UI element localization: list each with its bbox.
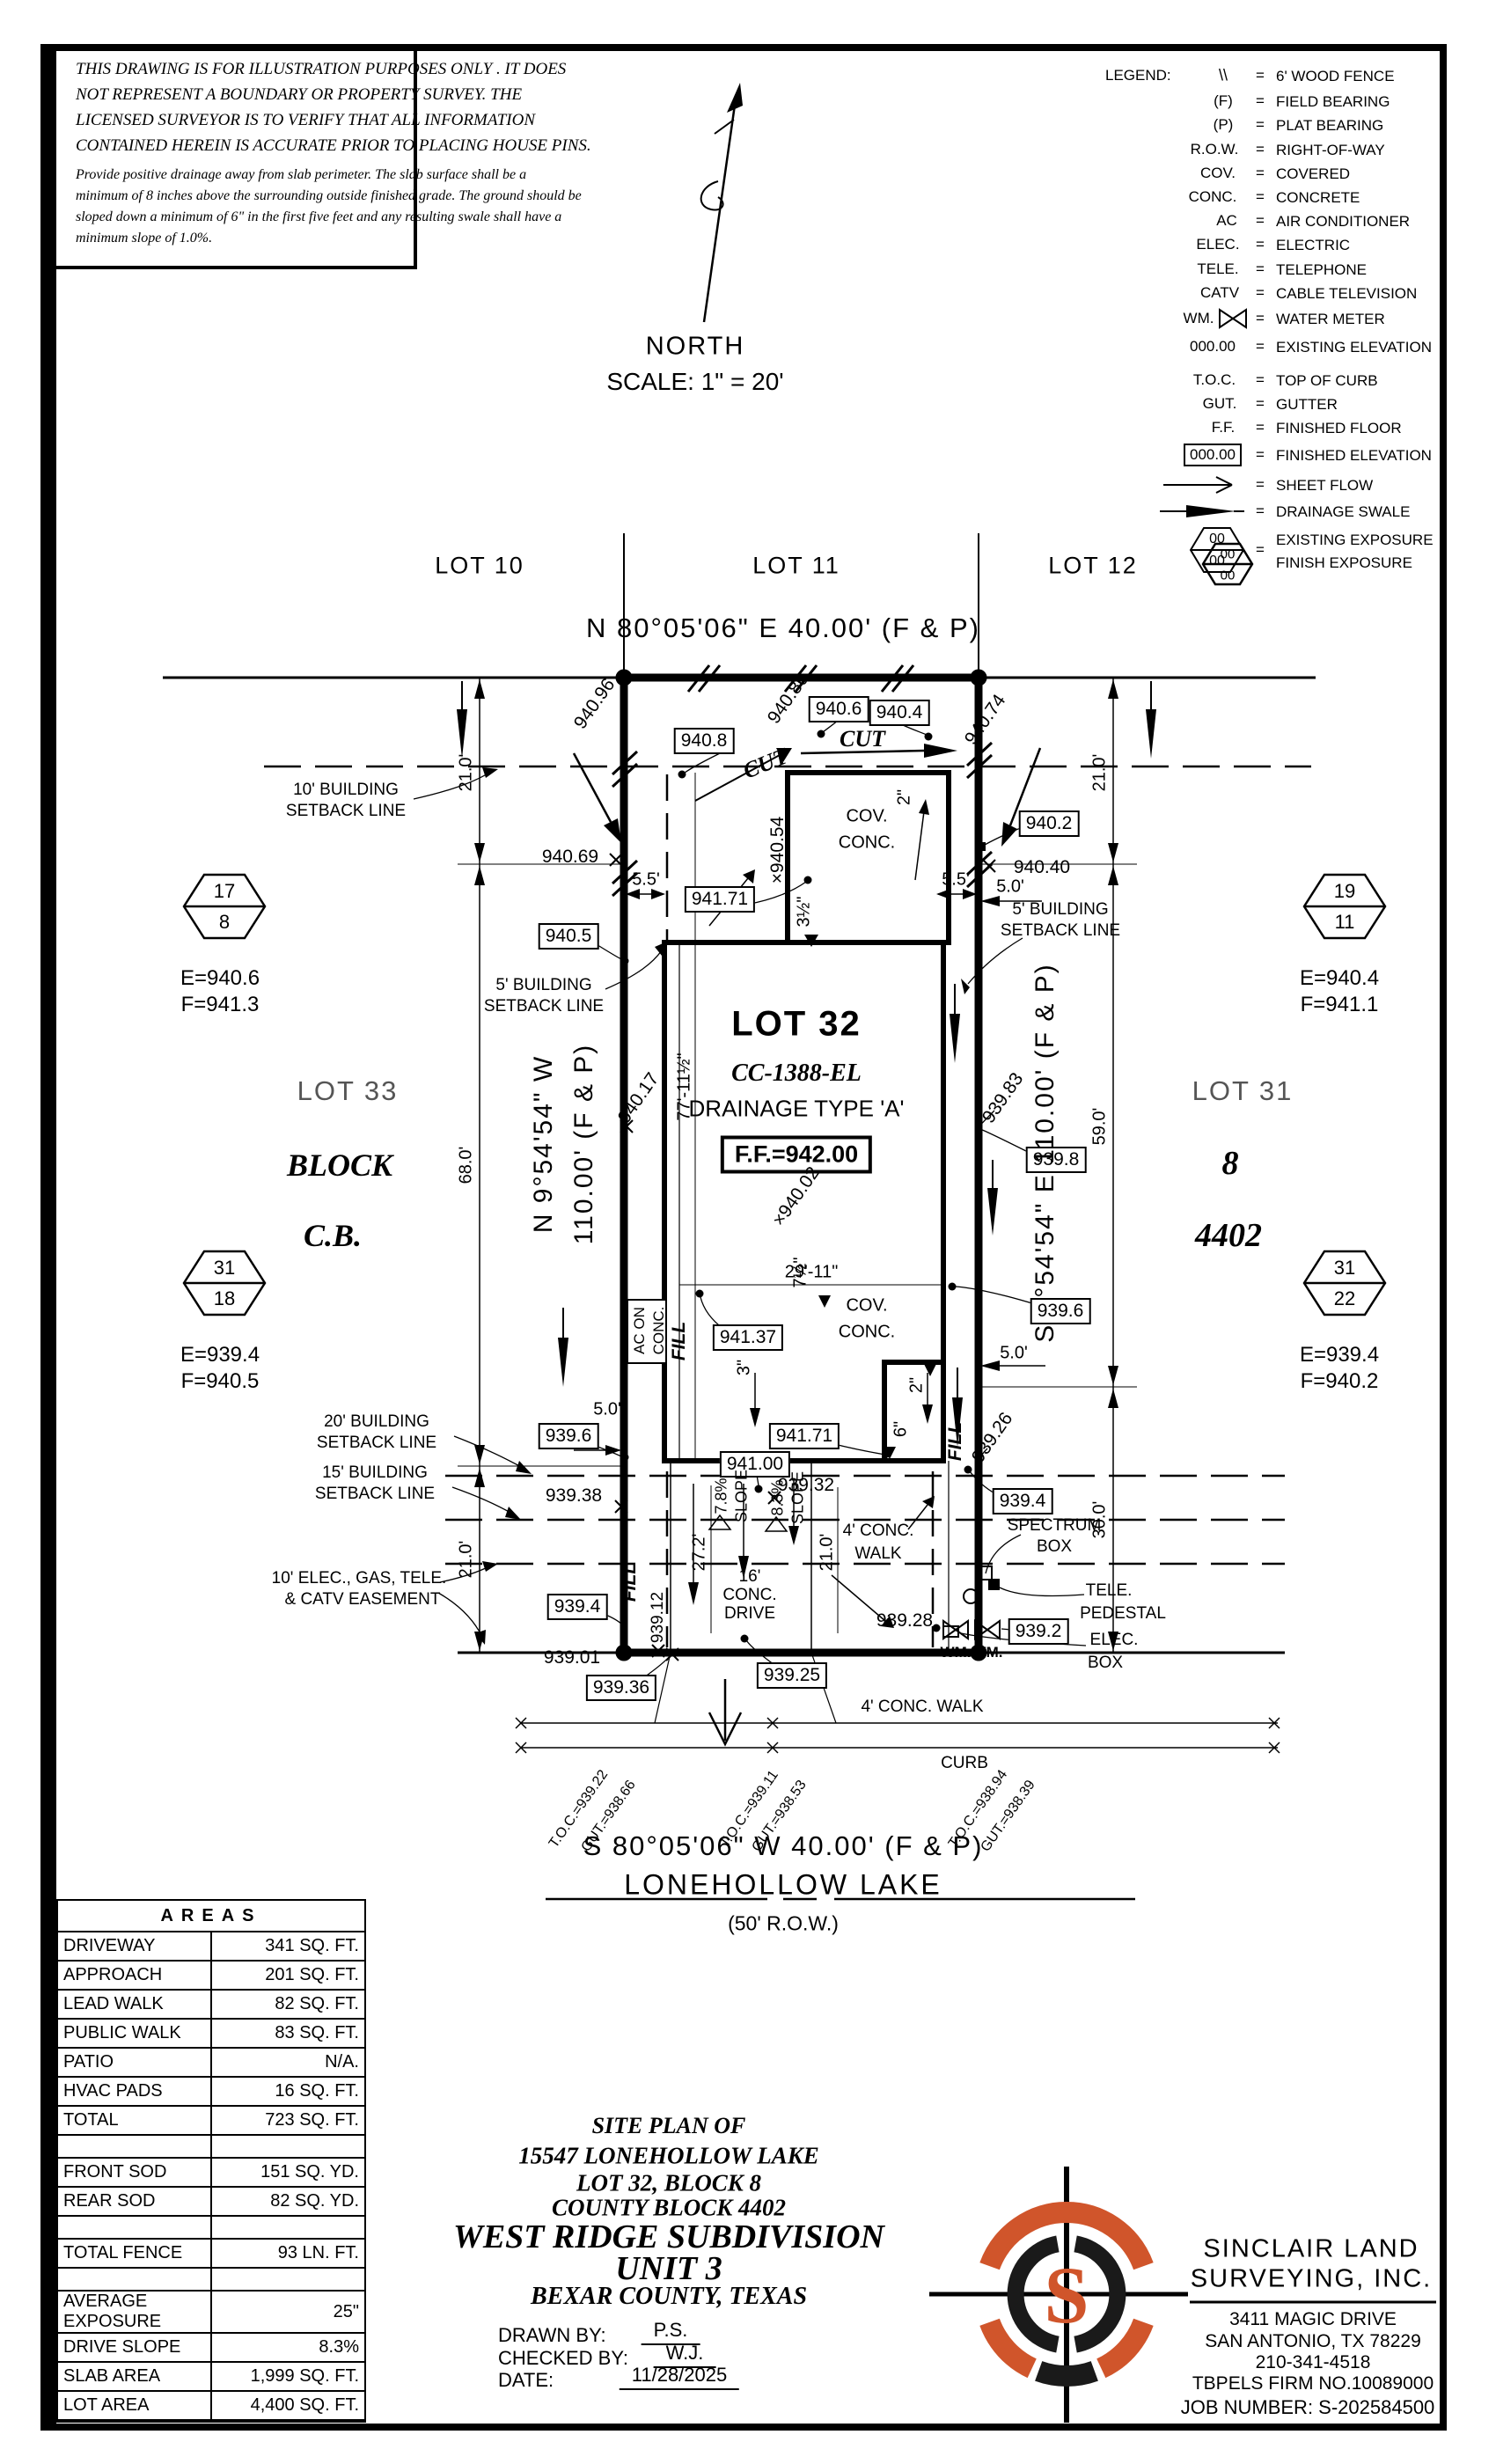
legend-desc-10: WATER METER xyxy=(1276,311,1385,328)
elec-box-label-2: BOX xyxy=(1088,1654,1123,1673)
areas-row-label: DRIVEWAY xyxy=(57,1932,211,1961)
spot-939-36: 939.36 xyxy=(586,1675,656,1701)
bearing-west-line-2: 110.00' (F & P) xyxy=(569,1044,599,1245)
company-firm-number: TBPELS FIRM NO.10089000 xyxy=(1192,2373,1434,2394)
legend-desc-14: FINISHED FLOOR xyxy=(1276,420,1402,437)
legend-eq-13: = xyxy=(1256,395,1265,413)
legend-sym-14: F.F. xyxy=(1212,419,1235,436)
legend-desc-7: ELECTRIC xyxy=(1276,237,1350,254)
logo-letter: S xyxy=(1044,2248,1089,2342)
setback-5-left-label-1: 5' BUILDING xyxy=(495,976,591,995)
areas-row-label: AVERAGE EXPOSURE xyxy=(57,2291,211,2333)
legend-eq-10: = xyxy=(1256,310,1265,327)
areas-row-label: LOT AREA xyxy=(57,2391,211,2420)
title-line-1: SITE PLAN OF xyxy=(592,2113,746,2139)
conc-label-front: CONC. xyxy=(839,1323,895,1343)
sheet-flow-icon xyxy=(1163,477,1232,493)
setback-15-label-1: 15' BUILDING xyxy=(322,1463,428,1483)
legend-desc-4: COVERED xyxy=(1276,165,1350,183)
utility-symbols xyxy=(943,1566,1000,1639)
legend-eq-3: = xyxy=(1256,141,1265,158)
cb-4402-label: 4402 xyxy=(1195,1216,1262,1255)
north-label: NORTH xyxy=(646,333,745,362)
legend-sym-3: R.O.W. xyxy=(1191,141,1239,158)
legend-sym-9: CATV xyxy=(1200,284,1239,302)
spot-940-40: 940.40 xyxy=(1014,857,1070,878)
cb-word: C.B. xyxy=(304,1217,362,1254)
spectrum-box-label-2: BOX xyxy=(1037,1537,1072,1557)
parcel-cc-number: CC-1388-EL xyxy=(731,1060,862,1088)
areas-row-value: 93 LN. FT. xyxy=(211,2239,365,2268)
areas-row-value: 8.3% xyxy=(211,2333,365,2362)
spot-939-2: 939.2 xyxy=(1008,1618,1069,1645)
benchmark-3-finish: F=941.1 xyxy=(1301,993,1379,1017)
areas-row-label: DRIVE SLOPE xyxy=(57,2333,211,2362)
setback-10-label-1: 10' BUILDING xyxy=(293,781,399,800)
legend-eq-8: = xyxy=(1256,260,1265,278)
checked-by-label: CHECKED BY: xyxy=(498,2347,628,2370)
spot-941-00: 941.00 xyxy=(720,1451,790,1478)
legend-eq-18: = xyxy=(1256,541,1265,559)
parcel-name: LOT 32 xyxy=(731,1005,862,1045)
drive-label-3: DRIVE xyxy=(724,1604,775,1624)
legend-eq-16: = xyxy=(1256,476,1265,494)
legend-exposure-desc-1: EXISTING EXPOSURE xyxy=(1276,532,1434,549)
legend-desc-0: 6' WOOD FENCE xyxy=(1276,68,1395,85)
easement-label-1: 10' ELEC., GAS, TELE. xyxy=(272,1569,447,1588)
dim-77-11: 77'-11½" xyxy=(675,1052,695,1120)
legend-eq-15: = xyxy=(1256,446,1265,464)
spot-940-6: 940.6 xyxy=(809,696,869,722)
legend-desc-5: CONCRETE xyxy=(1276,189,1360,207)
street-name: LONEHOLLOW LAKE xyxy=(624,1869,942,1902)
title-line-2: 15547 LONEHOLLOW LAKE xyxy=(518,2143,819,2170)
legend-desc-3: RIGHT-OF-WAY xyxy=(1276,142,1385,159)
setback-5-left-label-2: SETBACK LINE xyxy=(484,997,604,1016)
areas-table: AREAS DRIVEWAY341 SQ. FT. APPROACH201 SQ… xyxy=(56,1899,366,2413)
legend-desc-8: TELEPHONE xyxy=(1276,261,1367,279)
areas-row-blank xyxy=(57,2268,211,2291)
site-plan-sheet: THIS DRAWING IS FOR ILLUSTRATION PURPOSE… xyxy=(0,0,1496,2464)
spot-941-37: 941.37 xyxy=(713,1324,783,1351)
spot-940-2: 940.2 xyxy=(1019,810,1080,837)
legend-sym-12: T.O.C. xyxy=(1193,371,1236,389)
areas-row-value: 341 SQ. FT. xyxy=(211,1932,365,1961)
cov-label-front: COV. xyxy=(846,1296,887,1316)
drainage-swale-icon xyxy=(1160,505,1244,517)
dim-5-5-left: 5.5' xyxy=(632,870,660,891)
benchmark-3-existing: E=940.4 xyxy=(1300,966,1379,991)
legend-desc-11: EXISTING ELEVATION xyxy=(1276,339,1432,356)
dim-2in-rear: 2" xyxy=(895,789,915,805)
bearing-south: S 80°05'06" W 40.00' (F & P) xyxy=(583,1830,984,1862)
block-8-label: 8 xyxy=(1222,1144,1239,1183)
cov-label-rear: COV. xyxy=(846,807,887,827)
legend-desc-2: PLAT BEARING xyxy=(1276,117,1383,135)
areas-row-blank xyxy=(57,2216,211,2239)
public-walk-label: 4' CONC. WALK xyxy=(861,1698,983,1717)
legend-eq-4: = xyxy=(1256,165,1265,182)
finished-floor-value: F.F.=942.00 xyxy=(721,1136,872,1174)
cut-label-2: CUT xyxy=(840,726,885,752)
benchmark-4-finish: F=940.2 xyxy=(1301,1369,1379,1394)
benchmark-4-existing: E=939.4 xyxy=(1300,1343,1379,1368)
spot-941-71-front: 941.71 xyxy=(769,1423,840,1449)
dim-3half: 3½" xyxy=(795,897,815,928)
spot-939-38: 939.38 xyxy=(546,1485,602,1507)
spot-939-6-left: 939.6 xyxy=(539,1423,599,1449)
legend-exposure-desc-2: FINISH EXPOSURE xyxy=(1276,554,1412,572)
bearing-north: N 80°05'06" E 40.00' (F & P) xyxy=(586,612,980,644)
legend-eq-7: = xyxy=(1256,236,1265,253)
areas-row-label: FRONT SOD xyxy=(57,2158,211,2187)
benchmark-1-finish: F=941.3 xyxy=(181,993,260,1017)
areas-row-label: TOTAL xyxy=(57,2106,211,2135)
spot-941-71-rear: 941.71 xyxy=(685,886,755,913)
slope-2-value: 8.3% xyxy=(769,1479,788,1515)
areas-row-blank xyxy=(57,2135,211,2158)
dim-7half: 7½" xyxy=(791,1258,811,1288)
legend-sym-6: AC xyxy=(1216,212,1237,230)
tele-pedestal-label-1: TELE. xyxy=(1086,1581,1133,1601)
elec-box-label-1: ELEC. xyxy=(1090,1631,1139,1650)
legend-desc-16: SHEET FLOW xyxy=(1276,477,1373,495)
setback-5-right-label-2: SETBACK LINE xyxy=(1001,921,1120,941)
benchmark-2-bottom: 18 xyxy=(214,1287,235,1310)
setback-20-label-2: SETBACK LINE xyxy=(317,1434,436,1453)
legend-sym-5: CONC. xyxy=(1189,188,1237,206)
street-row: (50' R.O.W.) xyxy=(728,1912,839,1936)
scale-label: SCALE: 1" = 20' xyxy=(606,368,783,396)
legend-desc-9: CABLE TELEVISION xyxy=(1276,285,1417,303)
ac-pad-label-1: AC ON xyxy=(631,1307,649,1354)
slope-1-value: 7.8% xyxy=(713,1478,731,1514)
spot-940-69: 940.69 xyxy=(542,847,598,868)
benchmark-2-finish: F=940.5 xyxy=(181,1369,260,1394)
legend-desc-13: GUTTER xyxy=(1276,396,1338,414)
spot-939-28: 939.28 xyxy=(876,1610,933,1632)
company-phone: 210-341-4518 xyxy=(1256,2352,1371,2373)
areas-row-value: 201 SQ. FT. xyxy=(211,1961,365,1990)
areas-row-value: 25" xyxy=(211,2291,365,2333)
dim-2in-front: 2" xyxy=(907,1377,928,1393)
wm-label-2: WM. xyxy=(972,1644,1003,1661)
legend-exposure-top: 00 xyxy=(1209,532,1225,547)
title-line-3: LOT 32, BLOCK 8 xyxy=(576,2170,761,2197)
legend-desc-1: FIELD BEARING xyxy=(1276,93,1390,111)
dim-21-drive: 21.0' xyxy=(818,1534,838,1572)
spot-940-4: 940.4 xyxy=(869,700,930,726)
spot-940-5: 940.5 xyxy=(539,923,599,950)
lot10-label: LOT 10 xyxy=(435,553,524,580)
spot-939-4-right: 939.4 xyxy=(993,1488,1053,1514)
setback-5-right-label-1: 5' BUILDING xyxy=(1012,900,1108,920)
legend-title: LEGEND: xyxy=(1105,67,1171,84)
areas-row-value: 723 SQ. FT. xyxy=(211,2106,365,2135)
areas-row-value: 151 SQ. YD. xyxy=(211,2158,365,2187)
legend-eq-17: = xyxy=(1256,502,1265,520)
spot-939-12: 939.12 xyxy=(649,1592,668,1643)
legend-eq-14: = xyxy=(1256,419,1265,436)
easement-label-2: & CATV EASEMENT xyxy=(284,1590,440,1610)
legend-eq-11: = xyxy=(1256,338,1265,356)
ac-pad-label-2: CONC. xyxy=(650,1307,668,1355)
dim-5-5-right: 5.5' xyxy=(942,870,970,891)
dim-5-0-left: 5.0' xyxy=(593,1400,621,1420)
exposure-hex-bottom-value: 00 xyxy=(1221,568,1236,583)
spot-939-01: 939.01 xyxy=(544,1647,600,1668)
spot-940-54: ×940.54 xyxy=(767,817,788,884)
areas-row-value: N/A. xyxy=(211,2048,365,2077)
areas-row-value: 82 SQ. YD. xyxy=(211,2187,365,2216)
legend-eq-2: = xyxy=(1256,116,1265,134)
fill-label-2: FILL xyxy=(620,1563,641,1602)
legend-sym-11: 000.00 xyxy=(1190,338,1236,356)
date-label: DATE: xyxy=(498,2369,554,2392)
areas-row-value: 16 SQ. FT. xyxy=(211,2077,365,2106)
legend-sym-1: (F) xyxy=(1214,92,1233,110)
legend-sym-10: WM. xyxy=(1184,310,1214,327)
areas-row-label: REAR SOD xyxy=(57,2187,211,2216)
benchmark-2-existing: E=939.4 xyxy=(180,1343,260,1368)
company-address-2: SAN ANTONIO, TX 78229 xyxy=(1205,2331,1421,2352)
slope-1-word: SLOPE xyxy=(733,1470,752,1522)
legend-eq-1: = xyxy=(1256,92,1265,110)
setback-20-label-1: 20' BUILDING xyxy=(324,1412,429,1432)
dim-5-0-right-porch: 5.0' xyxy=(1000,1344,1028,1364)
title-line-7: BEXAR COUNTY, TEXAS xyxy=(531,2283,807,2311)
setback-10-label-2: SETBACK LINE xyxy=(286,802,406,821)
dim-21-right-top: 21.0' xyxy=(1090,754,1111,792)
legend-eq-5: = xyxy=(1256,188,1265,206)
benchmark-4-bottom: 22 xyxy=(1334,1287,1355,1310)
areas-title: AREAS xyxy=(57,1900,365,1932)
spot-939-6-right: 939.6 xyxy=(1030,1298,1091,1324)
legend-sym-8: TELE. xyxy=(1197,260,1238,278)
areas-row-value: 4,400 SQ. FT. xyxy=(211,2391,365,2420)
benchmark-1-bottom: 8 xyxy=(219,911,230,934)
benchmark-3-top: 19 xyxy=(1334,880,1355,903)
areas-row-label: APPROACH xyxy=(57,1961,211,1990)
date-value: 11/28/2025 xyxy=(620,2364,739,2390)
company-name-1: SINCLAIR LAND xyxy=(1203,2235,1419,2264)
lot31-label: LOT 31 xyxy=(1192,1075,1294,1107)
conc-label-rear: CONC. xyxy=(839,833,895,854)
fill-label-1: FILL xyxy=(669,1322,690,1360)
areas-row-value: 83 SQ. FT. xyxy=(211,2019,365,2048)
areas-row-label: SLAB AREA xyxy=(57,2362,211,2391)
lead-walk-label-2: WALK xyxy=(854,1544,901,1564)
water-meter-legend-icon xyxy=(1220,310,1246,327)
legend-sym-13: GUT. xyxy=(1203,395,1237,413)
areas-row-label: HVAC PADS xyxy=(57,2077,211,2106)
drawn-by-label: DRAWN BY: xyxy=(498,2324,606,2347)
dim-68-left: 68.0' xyxy=(457,1147,477,1184)
legend-eq-0: = xyxy=(1256,67,1265,84)
exposure-hex-top-value: 00 xyxy=(1221,547,1236,562)
spot-939-25: 939.25 xyxy=(757,1662,827,1689)
legend-desc-17: DRAINAGE SWALE xyxy=(1276,503,1410,521)
lot12-label: LOT 12 xyxy=(1048,553,1138,580)
parcel-drainage-type: DRAINAGE TYPE 'A' xyxy=(689,1096,905,1123)
areas-row-label: TOTAL FENCE xyxy=(57,2239,211,2268)
bearing-east-line: S 9°54'54" E 110.00' (F & P) xyxy=(1030,963,1060,1342)
dim-21-left-top: 21.0' xyxy=(457,754,477,792)
drive-label-2: CONC. xyxy=(722,1586,776,1605)
benchmark-3-bottom: 11 xyxy=(1335,911,1355,934)
company-address-1: 3411 MAGIC DRIVE xyxy=(1229,2309,1397,2330)
drive-label-1: 16' xyxy=(739,1567,761,1587)
fill-label-3: FILL xyxy=(945,1422,966,1461)
areas-row-value: 82 SQ. FT. xyxy=(211,1990,365,2019)
benchmark-1-existing: E=940.6 xyxy=(180,966,260,991)
dim-59-right: 59.0' xyxy=(1090,1108,1111,1146)
dim-27-2: 27.2' xyxy=(690,1534,710,1572)
legend-sym-0: \\ xyxy=(1219,67,1228,85)
curb-label: CURB xyxy=(941,1754,988,1773)
dim-6in: 6" xyxy=(891,1421,912,1437)
north-arrow-icon xyxy=(701,83,743,322)
company-name-2: SURVEYING, INC. xyxy=(1191,2265,1432,2294)
legend-desc-15: FINISHED ELEVATION xyxy=(1276,447,1432,465)
benchmark-2-top: 31 xyxy=(214,1257,235,1280)
areas-row-value: 1,999 SQ. FT. xyxy=(211,2362,365,2391)
legend-eq-9: = xyxy=(1256,284,1265,302)
benchmark-4-top: 31 xyxy=(1334,1257,1355,1280)
block-word: BLOCK xyxy=(287,1147,392,1184)
areas-row-blank xyxy=(57,2420,211,2422)
benchmark-1-top: 17 xyxy=(214,880,235,903)
legend-desc-12: TOP OF CURB xyxy=(1276,372,1378,390)
dim-21-left-bottom: 21.0' xyxy=(457,1541,477,1579)
lot11-label: LOT 11 xyxy=(752,553,840,580)
spectrum-box-label-1: SPECTRUM xyxy=(1008,1516,1102,1536)
dim-3in: 3" xyxy=(735,1360,755,1375)
setback-15-label-2: SETBACK LINE xyxy=(315,1485,435,1504)
spot-940-8: 940.8 xyxy=(674,728,735,754)
areas-row-label: PATIO xyxy=(57,2048,211,2077)
wm-label-1: WM. xyxy=(941,1644,972,1661)
legend-sym-2: (P) xyxy=(1214,116,1234,134)
legend-sym-4: COV. xyxy=(1200,165,1236,182)
legend-eq-12: = xyxy=(1256,371,1265,389)
lot33-label: LOT 33 xyxy=(297,1075,399,1107)
areas-row-label: PUBLIC WALK xyxy=(57,2019,211,2048)
dim-5-0-right-patio: 5.0' xyxy=(996,877,1024,898)
legend-eq-6: = xyxy=(1256,212,1265,230)
spot-939-4-left: 939.4 xyxy=(547,1594,608,1620)
tele-pedestal-label-2: PEDESTAL xyxy=(1080,1604,1166,1624)
bearing-west-line-1: N 9°54'54" W xyxy=(529,1055,559,1233)
legend-sym-15: 000.00 xyxy=(1184,444,1242,466)
legend-sym-7: ELEC. xyxy=(1196,236,1239,253)
areas-row-label: LEAD WALK xyxy=(57,1990,211,2019)
legend-desc-6: AIR CONDITIONER xyxy=(1276,213,1410,231)
lead-walk-label-1: 4' CONC. xyxy=(843,1522,914,1541)
slope-2-word: SLOPE xyxy=(789,1471,808,1524)
job-number: JOB NUMBER: S-202584500 xyxy=(1181,2396,1435,2419)
